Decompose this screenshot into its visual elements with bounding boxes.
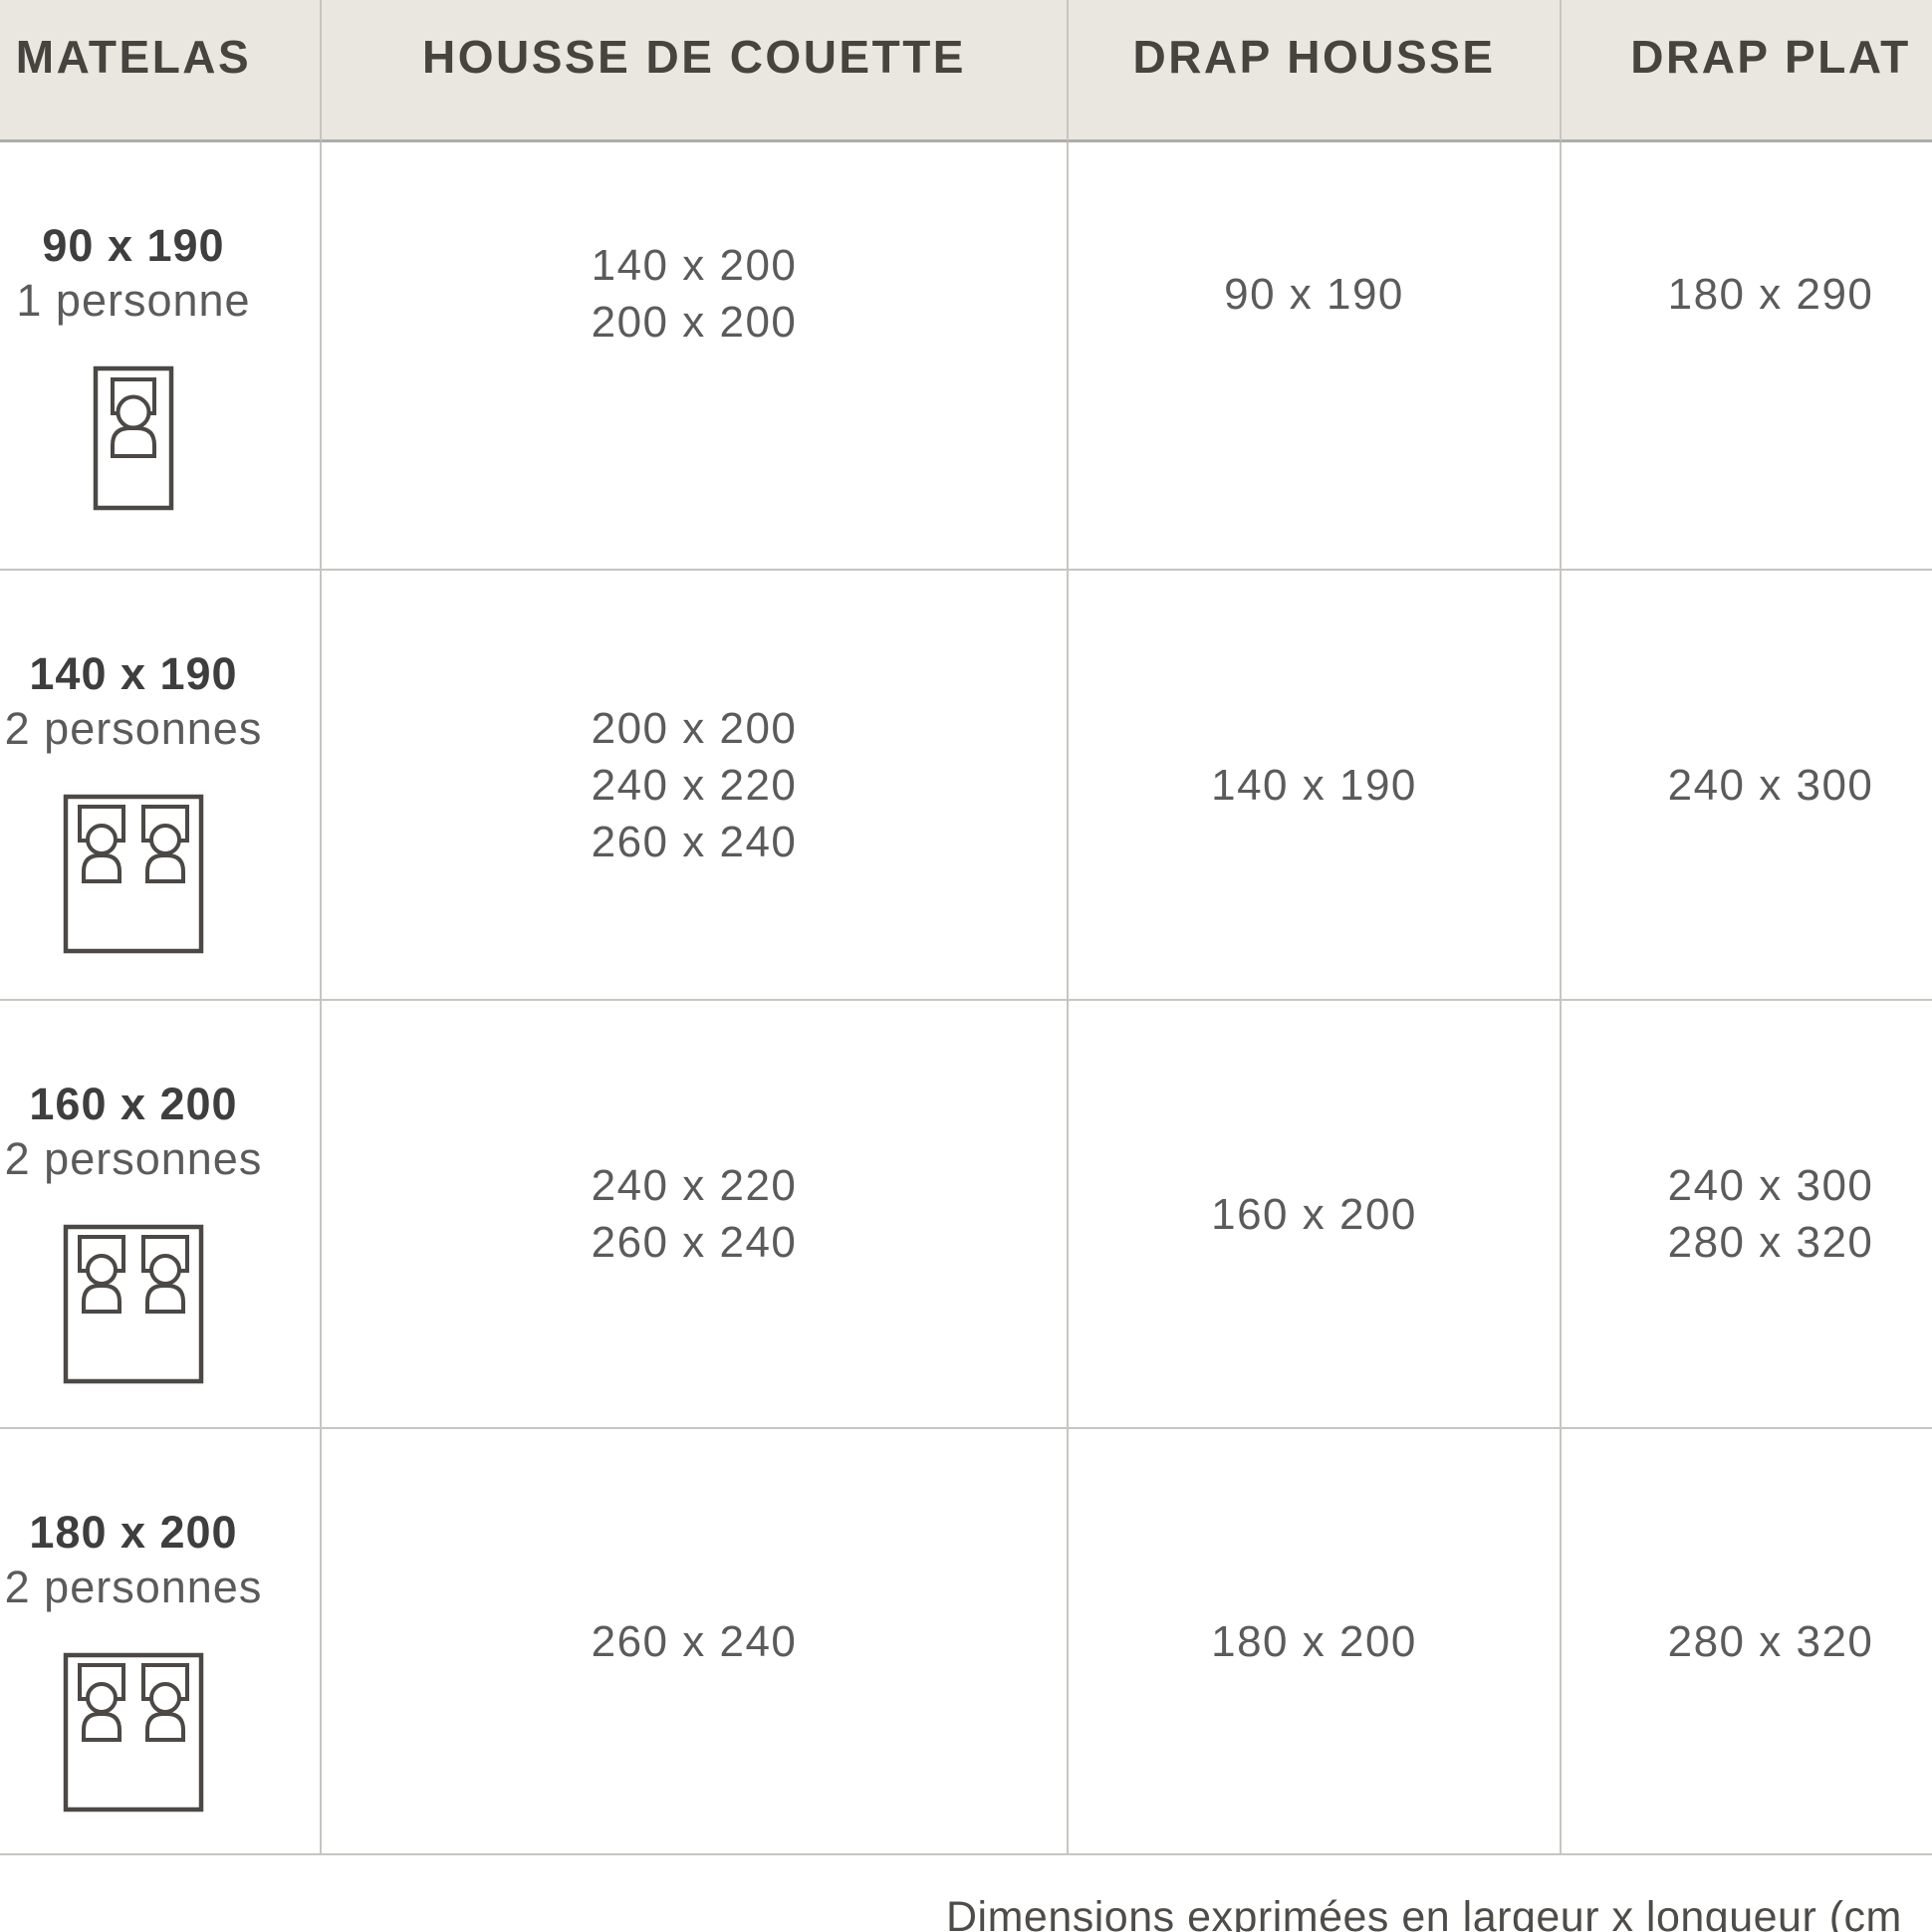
- header-cell-matelas: MATELAS: [0, 0, 322, 142]
- size-value: 140 x 190: [1211, 757, 1417, 814]
- header-cell-drap-housse: DRAP HOUSSE: [1069, 0, 1562, 142]
- drap-plat-cell: 240 x 300280 x 320: [1562, 1001, 1932, 1429]
- mattress-size-label: 90 x 190: [42, 220, 224, 272]
- size-value: 180 x 290: [1668, 266, 1874, 323]
- size-guide-screenshot: MATELAS HOUSSE DE COUETTE DRAP HOUSSE DR…: [0, 0, 1932, 1932]
- size-value: 240 x 300: [1668, 1157, 1874, 1214]
- double-bed-icon: [63, 794, 204, 954]
- matelas-cell: 140 x 1902 personnes: [0, 571, 322, 1001]
- matelas-cell: 180 x 2002 personnes: [0, 1429, 322, 1855]
- matelas-cell: 90 x 1901 personne: [0, 142, 322, 571]
- header-label-housse-de-couette: HOUSSE DE COUETTE: [422, 30, 966, 84]
- value-stack: 90 x 190: [1224, 266, 1404, 323]
- value-stack: 240 x 300280 x 320: [1668, 1157, 1874, 1271]
- single-bed-icon: [93, 365, 174, 511]
- capacity-label: 1 personne: [16, 272, 250, 330]
- value-stack: 160 x 200: [1211, 1186, 1417, 1243]
- header-label-drap-plat: DRAP PLAT: [1630, 30, 1910, 84]
- size-value: 240 x 300: [1668, 757, 1874, 814]
- size-value: 200 x 200: [592, 700, 798, 757]
- double-bed-icon: [63, 1224, 204, 1384]
- capacity-label: 2 personnes: [5, 1130, 263, 1188]
- drap-plat-cell: 180 x 290: [1562, 142, 1932, 571]
- drap-housse-cell: 90 x 190: [1069, 142, 1562, 571]
- size-value: 260 x 240: [592, 1613, 798, 1670]
- size-value: 280 x 320: [1668, 1214, 1874, 1271]
- size-value: 260 x 240: [592, 814, 798, 870]
- drap-plat-cell: 240 x 300: [1562, 571, 1932, 1001]
- mattress-size-label: 180 x 200: [29, 1507, 237, 1559]
- drap-plat-cell: 280 x 320: [1562, 1429, 1932, 1855]
- drap-housse-cell: 180 x 200: [1069, 1429, 1562, 1855]
- size-value: 140 x 200: [592, 237, 798, 294]
- value-stack: 280 x 320: [1668, 1613, 1874, 1670]
- size-value: 240 x 220: [592, 1157, 798, 1214]
- header-cell-drap-plat: DRAP PLAT: [1562, 0, 1932, 142]
- value-stack: 140 x 200200 x 200: [592, 237, 798, 351]
- size-value: 200 x 200: [592, 294, 798, 351]
- value-stack: 200 x 200240 x 220260 x 240: [592, 700, 798, 870]
- size-value: 160 x 200: [1211, 1186, 1417, 1243]
- size-guide-table: MATELAS HOUSSE DE COUETTE DRAP HOUSSE DR…: [0, 0, 1932, 1855]
- housse-de-couette-cell: 140 x 200200 x 200: [322, 142, 1069, 571]
- dimensions-note: Dimensions exprimées en largeur x longue…: [946, 1893, 1902, 1932]
- header-label-drap-housse: DRAP HOUSSE: [1132, 30, 1495, 84]
- value-stack: 180 x 200: [1211, 1613, 1417, 1670]
- housse-de-couette-cell: 200 x 200240 x 220260 x 240: [322, 571, 1069, 1001]
- capacity-label: 2 personnes: [5, 700, 263, 758]
- value-stack: 260 x 240: [592, 1613, 798, 1670]
- double-bed-icon: [63, 1652, 204, 1812]
- matelas-cell: 160 x 2002 personnes: [0, 1001, 322, 1429]
- capacity-label: 2 personnes: [5, 1559, 263, 1616]
- size-value: 90 x 190: [1224, 266, 1404, 323]
- housse-de-couette-cell: 240 x 220260 x 240: [322, 1001, 1069, 1429]
- header-label-matelas: MATELAS: [16, 30, 251, 84]
- size-value: 280 x 320: [1668, 1613, 1874, 1670]
- header-cell-housse-de-couette: HOUSSE DE COUETTE: [322, 0, 1069, 142]
- mattress-size-label: 160 x 200: [29, 1079, 237, 1130]
- value-stack: 140 x 190: [1211, 757, 1417, 814]
- housse-de-couette-cell: 260 x 240: [322, 1429, 1069, 1855]
- size-value: 240 x 220: [592, 757, 798, 814]
- drap-housse-cell: 160 x 200: [1069, 1001, 1562, 1429]
- drap-housse-cell: 140 x 190: [1069, 571, 1562, 1001]
- mattress-size-label: 140 x 190: [29, 648, 237, 700]
- value-stack: 240 x 300: [1668, 757, 1874, 814]
- size-value: 260 x 240: [592, 1214, 798, 1271]
- value-stack: 180 x 290: [1668, 266, 1874, 323]
- size-value: 180 x 200: [1211, 1613, 1417, 1670]
- value-stack: 240 x 220260 x 240: [592, 1157, 798, 1271]
